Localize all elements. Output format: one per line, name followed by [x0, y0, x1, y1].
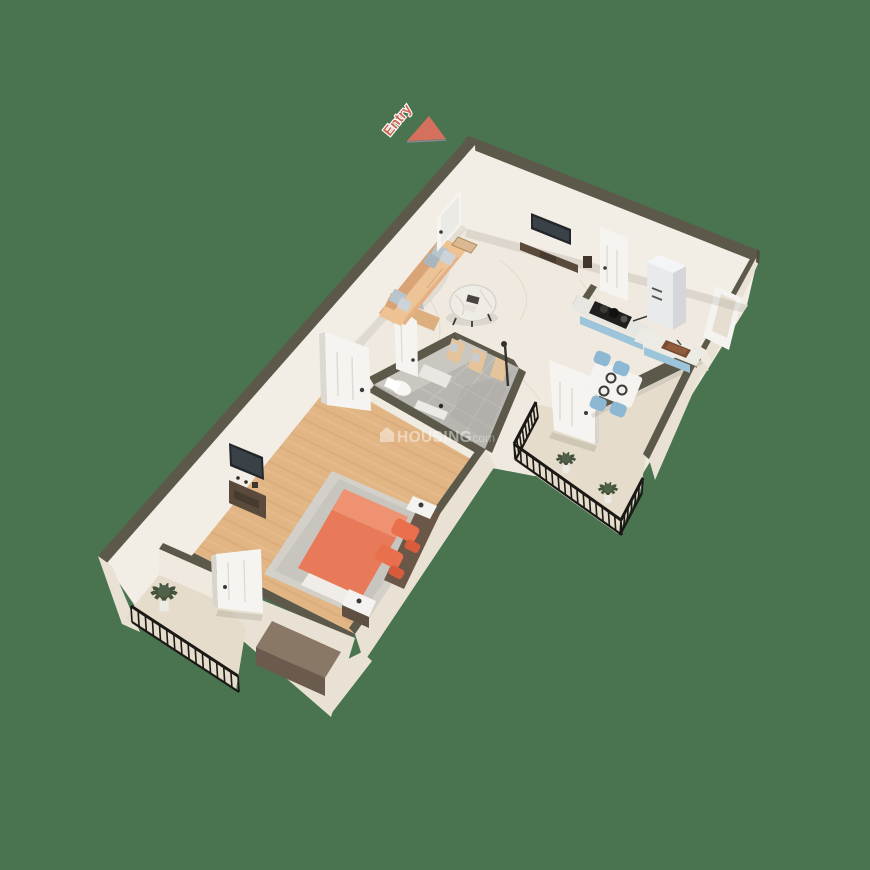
- svg-text:.com: .com: [469, 431, 495, 445]
- svg-text:HOUSING: HOUSING: [397, 429, 472, 446]
- svg-text:Entry: Entry: [380, 101, 415, 139]
